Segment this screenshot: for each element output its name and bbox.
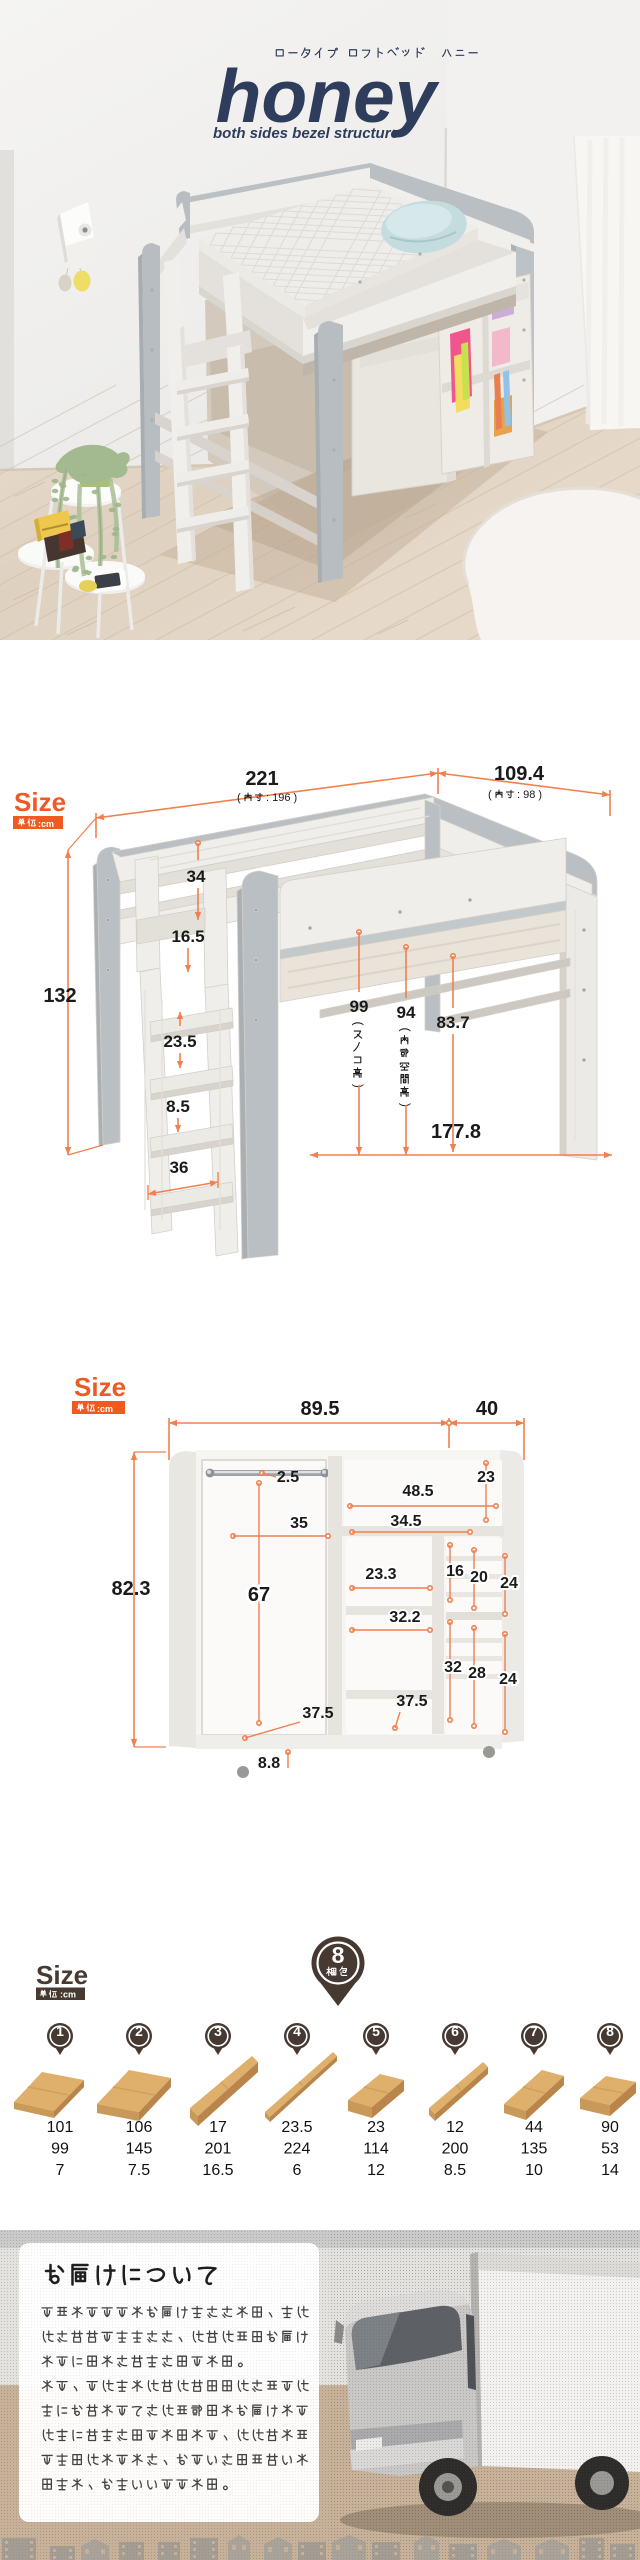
svg-text::cm: :cm [60,1990,76,2000]
svg-text:Size: Size [74,1372,126,1402]
svg-text:36: 36 [170,1158,189,1177]
svg-text:: 98 ): : 98 ) [517,789,542,801]
svg-text:(: ( [351,1021,365,1025]
svg-text:89.5: 89.5 [301,1398,340,1420]
svg-text:221: 221 [245,768,278,790]
svg-text:8.8: 8.8 [258,1755,280,1772]
svg-text:145: 145 [126,2141,153,2158]
svg-text:101: 101 [47,2119,74,2136]
svg-text:37.5: 37.5 [396,1693,427,1710]
svg-text:132: 132 [43,985,76,1007]
svg-text:37.5: 37.5 [302,1705,333,1722]
svg-text:12: 12 [446,2119,464,2136]
svg-text:67: 67 [248,1584,270,1606]
svg-text:82.3: 82.3 [112,1578,151,1600]
svg-text:4: 4 [293,2023,301,2039]
svg-text:177.8: 177.8 [431,1121,481,1143]
svg-text:7.5: 7.5 [128,2162,150,2179]
svg-text:6: 6 [451,2023,459,2039]
svg-text:8: 8 [332,1942,345,1968]
svg-text:20: 20 [470,1569,488,1586]
svg-text:both sides bezel structure: both sides bezel structure [213,125,399,142]
svg-text:8.5: 8.5 [444,2162,466,2179]
svg-text:17: 17 [209,2119,227,2136]
svg-text:12: 12 [367,2162,385,2179]
svg-text:53: 53 [601,2141,619,2158]
svg-text:224: 224 [284,2141,311,2158]
svg-text:28: 28 [468,1665,486,1682]
svg-text:83.7: 83.7 [436,1013,469,1032]
svg-text:Size: Size [14,787,66,817]
svg-text:109.4: 109.4 [494,763,545,785]
svg-text:10: 10 [525,2162,543,2179]
svg-text:24: 24 [499,1671,517,1688]
svg-text:1: 1 [56,2023,64,2039]
svg-text:201: 201 [205,2141,232,2158]
svg-text:90: 90 [601,2119,619,2136]
svg-text:3: 3 [214,2023,222,2039]
svg-text:(: ( [488,789,492,801]
svg-text:23.5: 23.5 [163,1032,196,1051]
svg-text:8: 8 [606,2023,614,2039]
svg-text:5: 5 [372,2023,380,2039]
svg-text:16.5: 16.5 [202,2162,233,2179]
svg-text:99: 99 [51,2141,69,2158]
svg-text:32: 32 [444,1659,462,1676]
svg-text:23.3: 23.3 [365,1566,396,1583]
svg-text:94: 94 [397,1003,416,1022]
svg-text::cm: :cm [97,1404,113,1414]
svg-text:14: 14 [601,2162,619,2179]
svg-text::cm: :cm [38,819,54,829]
svg-text:24: 24 [500,1575,518,1592]
svg-text:135: 135 [521,2141,548,2158]
svg-text:99: 99 [350,997,369,1016]
svg-text:7: 7 [530,2023,538,2039]
svg-text:6: 6 [293,2162,302,2179]
svg-text:44: 44 [525,2119,543,2136]
svg-text:16.5: 16.5 [171,927,204,946]
svg-text:106: 106 [126,2119,153,2136]
svg-text:: 196 ): : 196 ) [266,792,297,804]
svg-text:2: 2 [135,2023,143,2039]
svg-text:35: 35 [290,1515,308,1532]
svg-text:Size: Size [36,1960,88,1990]
svg-text:8.5: 8.5 [166,1097,190,1116]
svg-text:48.5: 48.5 [402,1483,433,1500]
svg-text:34: 34 [187,867,206,886]
svg-text:16: 16 [446,1563,464,1580]
svg-text:23: 23 [477,1469,495,1486]
svg-text:23.5: 23.5 [281,2119,312,2136]
svg-text:34.5: 34.5 [390,1513,421,1530]
svg-text:2.5: 2.5 [277,1469,299,1486]
svg-text:200: 200 [442,2141,469,2158]
svg-text:23: 23 [367,2119,385,2136]
svg-text:40: 40 [476,1398,498,1420]
svg-text:32.2: 32.2 [389,1609,420,1626]
svg-text:(: ( [237,792,241,804]
svg-text:(: ( [398,1027,412,1031]
svg-text:114: 114 [363,2141,389,2158]
svg-text:7: 7 [56,2162,65,2179]
